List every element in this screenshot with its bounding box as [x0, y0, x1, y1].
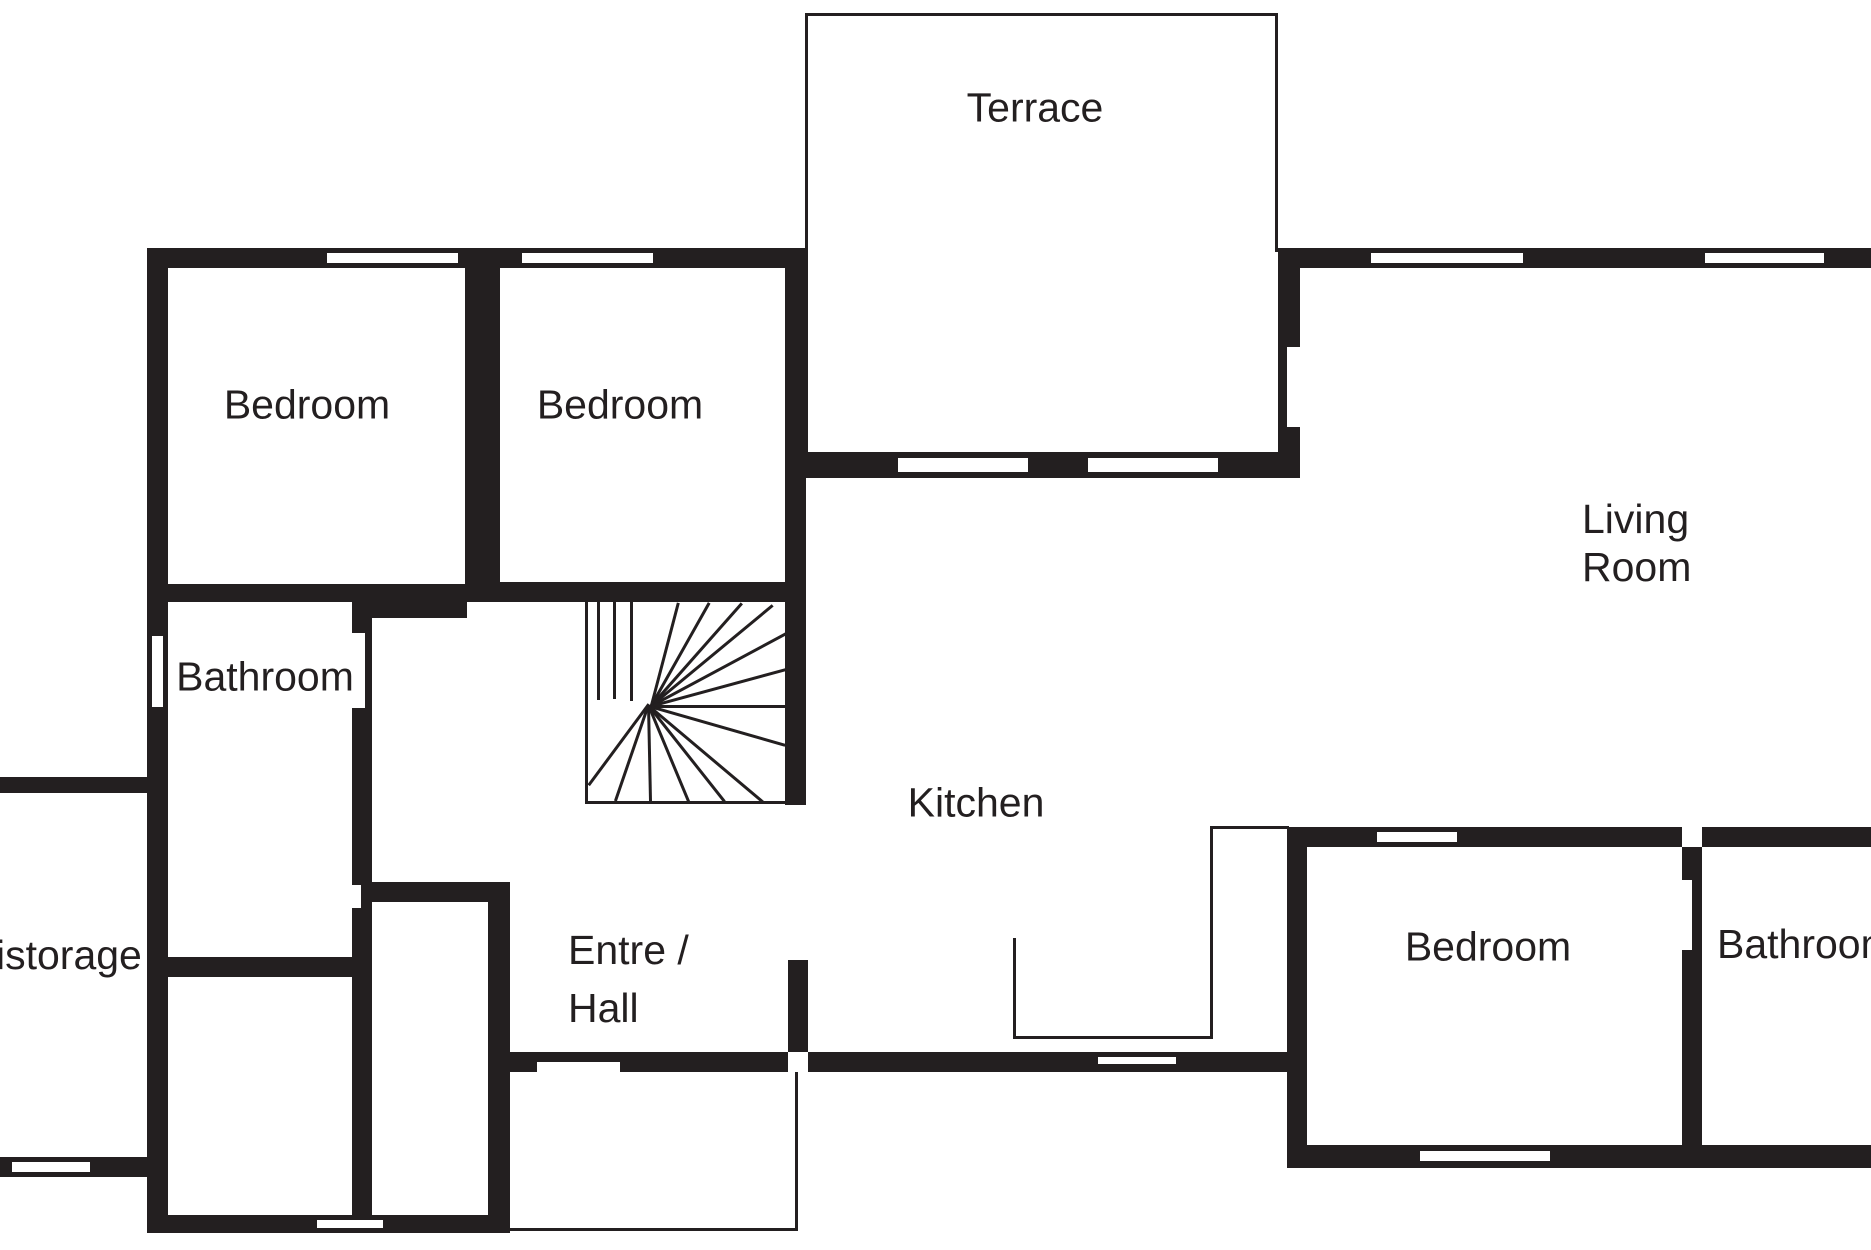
window-win-bottom-left [317, 1217, 383, 1231]
wall-hall-bottom-right [808, 1052, 1307, 1072]
window-win-living-2 [1705, 250, 1824, 266]
room-label-bedroom-1: Bedroom [224, 381, 390, 428]
window-win-bed3-bottom [1420, 1148, 1550, 1164]
line-nook-right [1210, 826, 1213, 1039]
opening-door-terrace [1287, 347, 1300, 427]
line-porch-bottom [508, 1228, 798, 1231]
window-win-bathroom [149, 636, 166, 707]
wall-bedrooms-top [147, 248, 806, 268]
stair-tread [631, 602, 634, 701]
stair-tread [598, 602, 601, 700]
room-label-bathroom-right: Bathroom [1717, 921, 1871, 968]
line-stairs-bottom [585, 801, 788, 804]
wall-terrace-bottom [785, 452, 1300, 478]
stair-tread [648, 705, 726, 803]
wall-bedroom2-right [785, 268, 806, 805]
window-win-bed2 [522, 250, 653, 266]
stair-tread [588, 704, 650, 786]
window-win-storage [12, 1159, 90, 1175]
wall-outer-bottom-right [1287, 1145, 1871, 1168]
line-nook-connector [1210, 826, 1289, 829]
stair-tread [648, 705, 652, 801]
wall-bedroom-divider [465, 268, 500, 584]
wall-outer-left [147, 248, 168, 1233]
room-label-bathroom-left: Bathroom [176, 653, 354, 700]
wall-bathroom-right-top [1702, 827, 1871, 847]
line-terrace-right [1275, 13, 1278, 252]
opening-door-bathroom-right [1682, 880, 1692, 950]
wall-door-jamb-stub [788, 960, 808, 1052]
room-label-living-room: Living Room [1582, 495, 1691, 592]
line-porch-right [795, 1072, 798, 1231]
line-terrace-top [806, 13, 1278, 16]
wall-bedroom3-top [1287, 827, 1682, 847]
window-win-bed3-top [1377, 829, 1457, 845]
wall-bedrooms-bottom-2 [372, 584, 467, 618]
wall-bathroom-bottom [168, 957, 372, 977]
room-label-storage: istorage [0, 932, 142, 979]
wall-bedroom3-left [1287, 827, 1307, 1168]
room-label-terrace: Terrace [967, 84, 1104, 131]
opening-door-bathroom [352, 633, 365, 708]
opening-door-hall [537, 1062, 620, 1072]
stair-tread [648, 705, 690, 802]
room-label-bedroom-3: Bedroom [1405, 923, 1571, 970]
stair-tread [648, 705, 764, 803]
room-label-bedroom-2: Bedroom [537, 381, 703, 428]
window-win-terrace-1 [898, 455, 1028, 475]
line-nook-stub [1013, 938, 1016, 1039]
line-nook-bottom [1013, 1036, 1213, 1039]
floorplan-canvas: TerraceBedroomBedroomLiving RoomBathroom… [0, 0, 1871, 1250]
window-win-kitchen [1098, 1054, 1176, 1067]
stair-tread [650, 604, 774, 707]
line-terrace-left [805, 13, 808, 454]
opening-door-bathroom-2 [352, 885, 361, 908]
line-stairs-left [585, 602, 588, 804]
room-label-kitchen: Kitchen [908, 779, 1045, 826]
window-win-bed1 [327, 250, 458, 266]
wall-hall-bottom-left [490, 1052, 788, 1072]
stair-tread [614, 602, 617, 699]
window-win-terrace-2 [1088, 455, 1218, 475]
window-win-living-1 [1371, 250, 1523, 266]
wall-bedrooms-bottom-3 [467, 582, 806, 602]
room-label-entre-hall: Entre / Hall [568, 921, 689, 1037]
wall-bedrooms-bottom-1 [147, 584, 372, 602]
stair-tread [615, 704, 650, 801]
stair-tread [650, 705, 786, 708]
wall-corridor-wall [372, 882, 510, 902]
wall-storage-top [0, 777, 147, 793]
